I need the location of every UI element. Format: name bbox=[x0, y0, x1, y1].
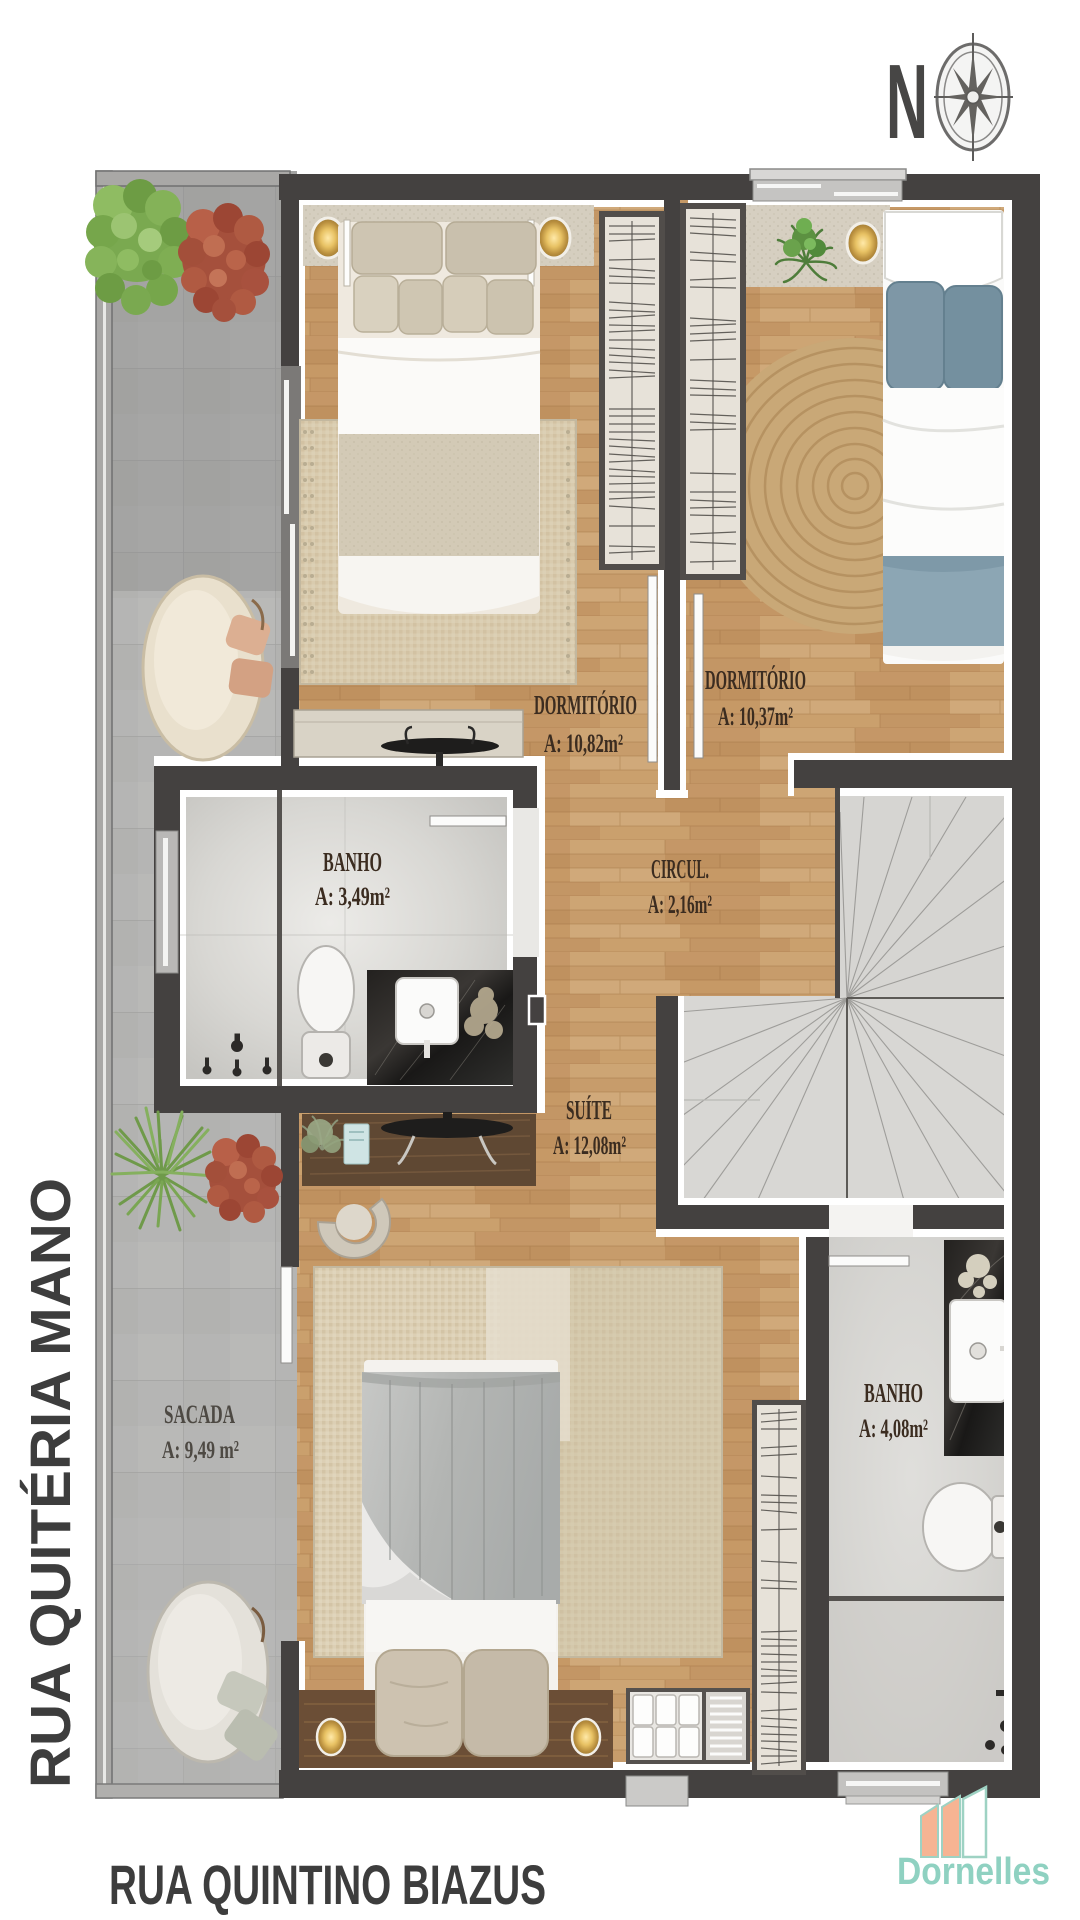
svg-text:A: 10,82m²: A: 10,82m² bbox=[544, 729, 623, 758]
svg-text:DORMITÓRIO: DORMITÓRIO bbox=[534, 690, 637, 720]
svg-text:Dornelles: Dornelles bbox=[897, 1851, 1050, 1893]
svg-text:A: 3,49m²: A: 3,49m² bbox=[315, 882, 390, 911]
svg-text:RUA QUITÉRIA MANO: RUA QUITÉRIA MANO bbox=[19, 1178, 83, 1788]
svg-text:BANHO: BANHO bbox=[323, 847, 382, 877]
svg-text:A: 10,37m²: A: 10,37m² bbox=[718, 702, 793, 731]
svg-text:DORMITÓRIO: DORMITÓRIO bbox=[705, 665, 806, 695]
svg-text:SUÍTE: SUÍTE bbox=[566, 1095, 612, 1125]
svg-text:SACADA: SACADA bbox=[164, 1400, 235, 1429]
svg-text:A: 4,08m²: A: 4,08m² bbox=[859, 1414, 928, 1443]
svg-text:BANHO: BANHO bbox=[864, 1378, 923, 1408]
svg-text:A: 9,49 m²: A: 9,49 m² bbox=[162, 1437, 239, 1464]
svg-text:RUA QUINTINO BIAZUS: RUA QUINTINO BIAZUS bbox=[109, 1853, 546, 1916]
svg-text:A: 12,08m²: A: 12,08m² bbox=[553, 1131, 626, 1160]
svg-text:N: N bbox=[886, 43, 928, 161]
svg-text:CIRCUL.: CIRCUL. bbox=[651, 854, 709, 884]
svg-text:A: 2,16m²: A: 2,16m² bbox=[648, 890, 712, 919]
